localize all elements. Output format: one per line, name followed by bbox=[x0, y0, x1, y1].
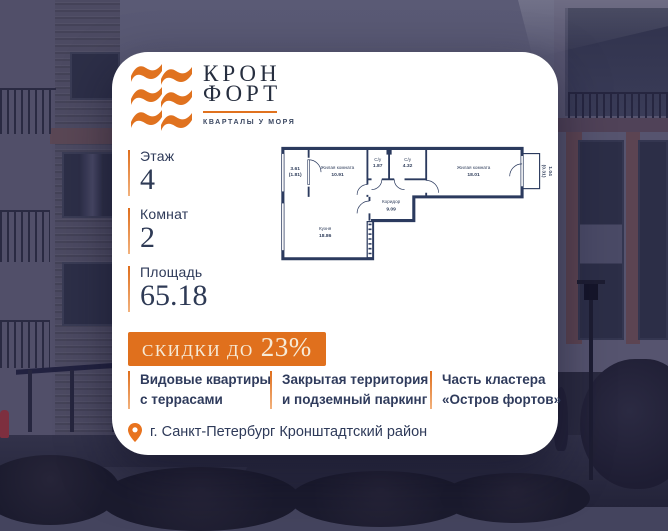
plan-balcony-left-size: 3.61 bbox=[290, 166, 300, 172]
plan-room2-area: 18.01 bbox=[467, 172, 480, 178]
feature-text: Часть кластера bbox=[442, 370, 561, 390]
feature-text: «Остров фортов» bbox=[442, 390, 561, 410]
feature-closed-territory: Закрытая территория и подземный паркинг bbox=[270, 370, 428, 412]
street-lamp-box bbox=[584, 284, 598, 300]
window bbox=[578, 140, 624, 340]
window bbox=[638, 140, 668, 340]
feature-text: Закрытая территория bbox=[282, 370, 428, 390]
accent-bar bbox=[128, 371, 130, 409]
balcony-railing bbox=[0, 88, 56, 134]
feature-cluster: Часть кластера «Остров фортов» bbox=[430, 370, 561, 412]
brand-waves-icon bbox=[128, 61, 198, 131]
balcony-railing bbox=[0, 320, 50, 368]
plan-kitchen-area: 18.86 bbox=[319, 233, 332, 239]
bush bbox=[440, 473, 590, 523]
feature-text: с террасами bbox=[140, 390, 271, 410]
balcony-railing bbox=[0, 210, 50, 262]
stat-area-value: 65.18 bbox=[140, 280, 248, 312]
accent-bar bbox=[128, 150, 130, 196]
discount-value: 23% bbox=[261, 332, 312, 363]
facade-band bbox=[50, 128, 120, 144]
street-lamp bbox=[589, 284, 593, 480]
location-pin-icon bbox=[128, 423, 142, 442]
plan-bath1-name: С/у bbox=[374, 157, 382, 162]
stat-area: Площадь 65.18 bbox=[128, 264, 248, 316]
logo-divider bbox=[203, 111, 277, 113]
stat-rooms-label: Комнат bbox=[140, 206, 248, 222]
stat-rooms: Комнат 2 bbox=[128, 206, 248, 258]
feature-text: и подземный паркинг bbox=[282, 390, 428, 410]
window bbox=[62, 152, 118, 218]
accent-bar bbox=[430, 371, 432, 409]
brand-logo: КРОН ФОРТ КВАРТАЛЫ У МОРЯ bbox=[203, 64, 323, 126]
plan-bath2-name: С/у bbox=[404, 157, 412, 162]
location-row: г. Санкт-Петербург Кронштадтский район bbox=[128, 421, 427, 443]
feature-view-apartments: Видовые квартиры с террасами bbox=[128, 370, 271, 412]
feature-text: Видовые квартиры bbox=[140, 370, 271, 390]
plan-corridor-name: Коридор bbox=[382, 199, 401, 204]
pergola-leg bbox=[28, 370, 32, 432]
discount-prefix: СКИДКИ ДО bbox=[142, 334, 254, 368]
apartment-offer-card[interactable]: КРОН ФОРТ КВАРТАЛЫ У МОРЯ Этаж 4 Комнат … bbox=[112, 52, 558, 455]
location-text: г. Санкт-Петербург Кронштадтский район bbox=[150, 424, 427, 440]
stat-floor: Этаж 4 bbox=[128, 148, 248, 200]
plan-balcony-right-size2: (0.31) bbox=[541, 165, 547, 178]
stat-floor-label: Этаж bbox=[140, 148, 248, 164]
plan-room1-area: 10.91 bbox=[331, 172, 344, 178]
plan-bath1-area: 1.87 bbox=[373, 163, 383, 169]
brand-tagline: КВАРТАЛЫ У МОРЯ bbox=[203, 119, 323, 126]
plan-room2-name: Жилая комната bbox=[457, 165, 491, 170]
stat-area-label: Площадь bbox=[140, 264, 248, 280]
plan-kitchen-name: Кухня bbox=[319, 226, 332, 231]
accent-bar bbox=[270, 371, 272, 409]
plan-balcony-left-size2: (1.81) bbox=[289, 172, 302, 178]
facade-band bbox=[554, 118, 668, 132]
plan-corridor-area: 9.09 bbox=[386, 206, 396, 212]
bush bbox=[100, 467, 300, 531]
brand-name-line2: ФОРТ bbox=[203, 84, 323, 104]
discount-banner: СКИДКИ ДО 23% bbox=[128, 332, 326, 366]
accent-bar bbox=[128, 208, 130, 254]
floor-plan: 3.61 (1.81) Жилая комната 10.91 С/у 1.87… bbox=[254, 135, 553, 267]
accent-bar bbox=[128, 266, 130, 312]
window bbox=[62, 262, 118, 326]
plan-balcony-right-size: 1.04 bbox=[547, 166, 553, 176]
plan-room1-name: Жилая комната bbox=[321, 165, 355, 170]
pergola-leg bbox=[70, 370, 74, 432]
stat-floor-value: 4 bbox=[140, 164, 248, 196]
stat-rooms-value: 2 bbox=[140, 222, 248, 254]
plan-bath2-area: 4.32 bbox=[403, 163, 413, 169]
pedestrian bbox=[0, 410, 9, 438]
